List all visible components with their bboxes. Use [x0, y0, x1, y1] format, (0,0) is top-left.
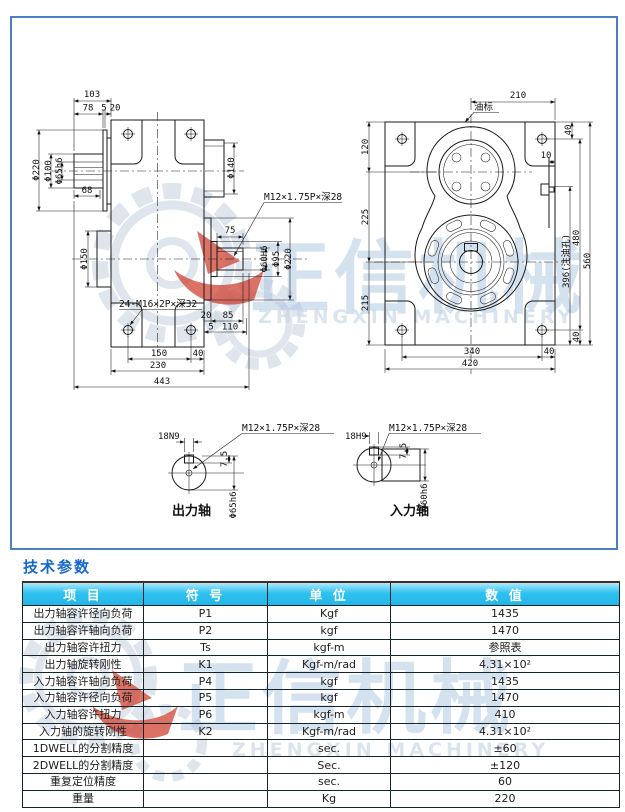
thread-callout: 24-M16×2P×深32 — [119, 299, 197, 310]
cell-unit: kgf-m — [268, 706, 391, 723]
engineering-drawing: 正信机械 ZHENGXIN MACHINERY — [12, 18, 616, 548]
dim-label: 103 — [84, 90, 100, 100]
dim-label: 40 — [544, 347, 555, 357]
cell-item: 2DWELL的分割精度 — [23, 757, 144, 774]
cell-item: 重量 — [23, 790, 144, 807]
dim-label: Φ95 — [272, 251, 282, 267]
spec-table: 项 目 符 号 单 位 数 值 出力轴容许径向负荷P1Kgf1435出力轴容许轴… — [22, 581, 620, 808]
cell-symbol: Ts — [144, 639, 268, 656]
cell-value: 参照表 — [391, 639, 620, 656]
cell-symbol — [144, 773, 268, 790]
cell-unit: kgf — [268, 689, 391, 706]
col-header-unit: 单 位 — [268, 582, 391, 606]
dim-label: 10 — [541, 151, 552, 161]
cell-unit: sec. — [268, 773, 391, 790]
dim-label: 225 — [361, 209, 371, 225]
thread-callout: M12×1.75P×深28 — [242, 423, 320, 434]
cell-value: 60 — [391, 773, 620, 790]
cell-symbol: P4 — [144, 673, 268, 690]
dim-label: Φ220 — [284, 248, 294, 270]
table-row: 1DWELL的分割精度sec.±60 — [23, 740, 620, 757]
dim-label: Φ65h6 — [55, 157, 65, 184]
dim-label: 85 — [223, 311, 234, 321]
dim-label: Φ100 — [44, 160, 54, 182]
cell-unit: Kgf — [268, 606, 391, 623]
cell-value: 1470 — [391, 689, 620, 706]
cell-item: 入力轴容许径向负荷 — [23, 689, 144, 706]
cell-item: 出力轴容许轴向负荷 — [23, 622, 144, 639]
dim-label: 210 — [510, 91, 526, 101]
table-row: 出力轴容许扭力Tskgf-m参照表 — [23, 639, 620, 656]
cell-unit: Kg — [268, 790, 391, 807]
dim-label: 560 — [583, 253, 593, 269]
dim-label: 75 — [225, 226, 236, 236]
dim-label: 110 — [222, 323, 238, 333]
dim-label: 230 — [150, 361, 166, 371]
cell-value: ±120 — [391, 757, 620, 774]
thread-callout: M12×1.75P×深28 — [389, 423, 467, 434]
drawing-sheet-frame: 正信机械 ZHENGXIN MACHINERY — [10, 16, 618, 550]
cell-item: 1DWELL的分割精度 — [23, 740, 144, 757]
table-row: 出力轴容许轴向负荷P2kgf1470 — [23, 622, 620, 639]
dim-label: 18N9 — [158, 432, 180, 442]
cell-value: 1470 — [391, 622, 620, 639]
cell-value: 1435 — [391, 606, 620, 623]
dim-label: 78 — [83, 104, 94, 114]
dim-label: 5 — [208, 323, 213, 333]
cell-symbol: P1 — [144, 606, 268, 623]
oil-gauge-label: 油标 — [474, 101, 494, 113]
cell-symbol: P5 — [144, 689, 268, 706]
table-row: 出力轴容许径向负荷P1Kgf1435 — [23, 606, 620, 623]
dim-label: Φ220 — [32, 159, 42, 181]
input-shaft-detail: 18H9 M12×1.75P×深28 7.5 Φ60h6 入力轴 — [345, 423, 481, 519]
cell-value: 410 — [391, 706, 620, 723]
dim-label: Φ150 — [80, 248, 90, 270]
cell-item: 出力轴容许扭力 — [23, 639, 144, 656]
dim-label: 18H9 — [345, 432, 367, 442]
table-row: 重量Kg220 — [23, 790, 620, 807]
cell-symbol — [144, 790, 268, 807]
dim-label: 40 — [572, 332, 582, 343]
table-row: 2DWELL的分割精度Sec.±120 — [23, 757, 620, 774]
cell-value: 1435 — [391, 673, 620, 690]
table-row: 出力轴旋转刚性K1Kgf-m/rad4.31×10² — [23, 656, 620, 673]
cell-unit: kgf — [268, 673, 391, 690]
dim-label: Φ140 — [227, 157, 237, 179]
output-shaft-label: 出力轴 — [172, 503, 211, 519]
dim-label: 480 — [572, 230, 582, 246]
dim-label: 20 — [201, 311, 212, 321]
dim-label: 150 — [151, 349, 167, 359]
spec-table-body: 出力轴容许径向负荷P1Kgf1435出力轴容许轴向负荷P2kgf1470出力轴容… — [23, 606, 620, 808]
cell-symbol: K2 — [144, 723, 268, 740]
cell-value: 4.31×10² — [391, 723, 620, 740]
dim-label: 40 — [193, 349, 204, 359]
dim-label: 68 — [82, 186, 93, 196]
cell-item: 入力轴的旋转刚性 — [23, 723, 144, 740]
dim-label: 340 — [464, 347, 480, 357]
cell-unit: Kgf-m/rad — [268, 656, 391, 673]
spec-header-row: 项 目 符 号 单 位 数 值 — [23, 582, 620, 606]
cell-symbol — [144, 757, 268, 774]
output-shaft-detail: 18N9 M12×1.75P×深28 7.5 Φ65h6 出力轴 — [158, 423, 334, 519]
cell-symbol: P2 — [144, 622, 268, 639]
cell-unit: kgf — [268, 622, 391, 639]
thread-callout: M12×1.75P×深28 — [264, 192, 342, 203]
dim-label: 5 — [101, 104, 106, 114]
cell-unit: sec. — [268, 740, 391, 757]
cell-symbol: K1 — [144, 656, 268, 673]
watermark-drawing: 正信机械 ZHENGXIN MACHINERY — [100, 191, 586, 364]
dim-label: 120 — [361, 139, 371, 155]
cell-item: 重复定位精度 — [23, 773, 144, 790]
cell-item: 出力轴旋转刚性 — [23, 656, 144, 673]
col-header-item: 项 目 — [23, 582, 144, 606]
cell-value: 4.31×10² — [391, 656, 620, 673]
dim-label: 7.5 — [220, 451, 230, 467]
cell-item: 出力轴容许径向负荷 — [23, 606, 144, 623]
table-row: 入力轴的旋转刚性K2Kgf-m/rad4.31×10² — [23, 723, 620, 740]
col-header-value: 数 值 — [391, 582, 620, 606]
dim-label: 420 — [462, 359, 478, 369]
table-row: 入力轴容许扭力P6kgf-m410 — [23, 706, 620, 723]
cell-item: 入力轴容许扭力 — [23, 706, 144, 723]
table-row: 入力轴容许径向负荷P5kgf1470 — [23, 689, 620, 706]
cell-value: ±60 — [391, 740, 620, 757]
dim-label: 215 — [361, 295, 371, 311]
dim-label: Φ60H6 — [260, 245, 270, 272]
table-row: 入力轴容许轴向负荷P4kgf1435 — [23, 673, 620, 690]
col-header-symbol: 符 号 — [144, 582, 268, 606]
watermark-en: ZHENGXIN MACHINERY — [258, 306, 575, 328]
cell-unit: Sec. — [268, 757, 391, 774]
cell-unit: Kgf-m/rad — [268, 723, 391, 740]
cell-value: 220 — [391, 790, 620, 807]
spec-table-title: 技术参数 — [23, 556, 91, 577]
cell-item: 入力轴容许轴向负荷 — [23, 673, 144, 690]
dim-label: 20 — [110, 104, 121, 114]
input-shaft-label: 入力轴 — [390, 503, 429, 519]
cell-unit: kgf-m — [268, 639, 391, 656]
page: { "colors": { "frame_border": "#4a7ec7",… — [0, 0, 625, 812]
table-row: 重复定位精度sec.60 — [23, 773, 620, 790]
spec-table-container: 项 目 符 号 单 位 数 值 出力轴容许径向负荷P1Kgf1435出力轴容许轴… — [22, 581, 619, 808]
dim-label: 396(注油孔) — [560, 234, 572, 288]
dim-label: 443 — [154, 377, 170, 387]
dim-label: Φ65h6 — [229, 491, 239, 518]
cell-symbol — [144, 740, 268, 757]
dim-label: 7.5 — [399, 443, 409, 459]
cell-symbol: P6 — [144, 706, 268, 723]
dim-label: 40 — [564, 125, 574, 136]
